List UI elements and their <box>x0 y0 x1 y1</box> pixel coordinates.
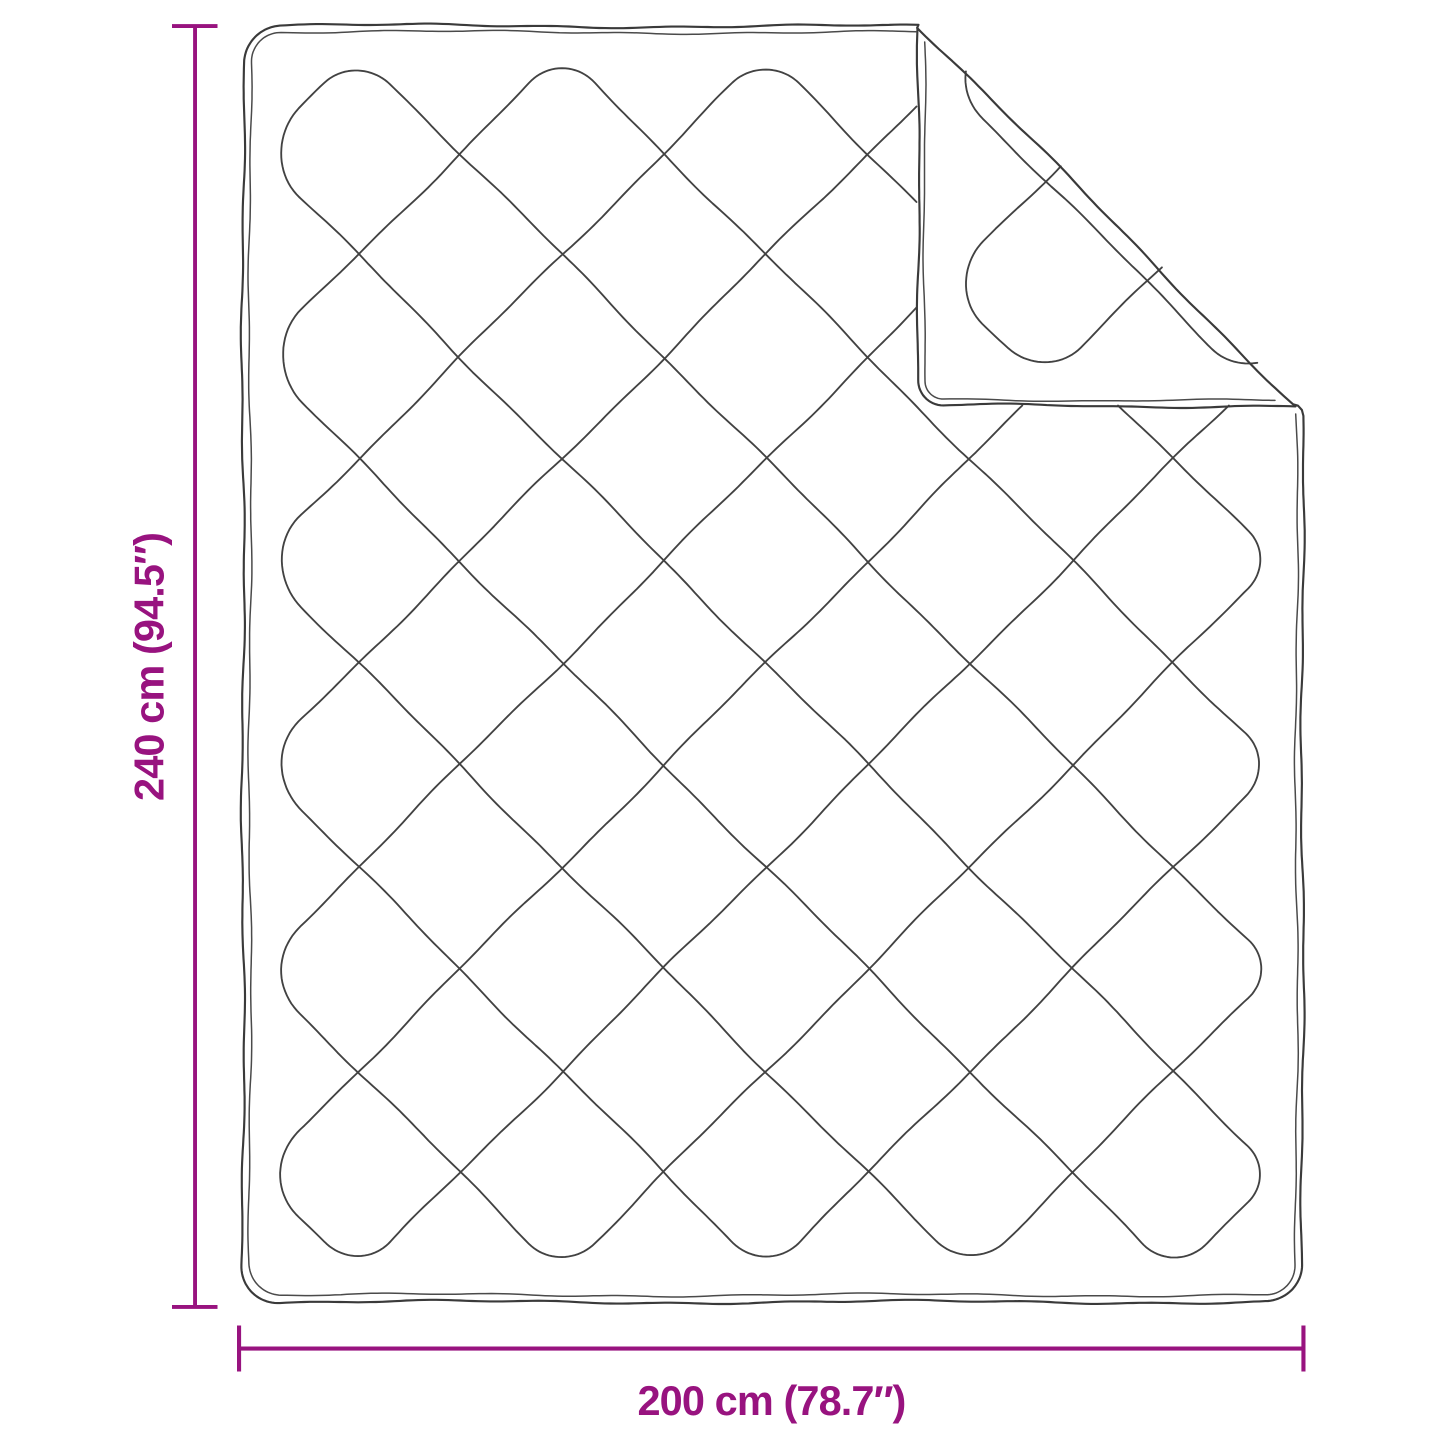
svg-text:200 cm (78.7″): 200 cm (78.7″) <box>638 1377 906 1424</box>
svg-text:240 cm (94.5″): 240 cm (94.5″) <box>126 533 173 801</box>
